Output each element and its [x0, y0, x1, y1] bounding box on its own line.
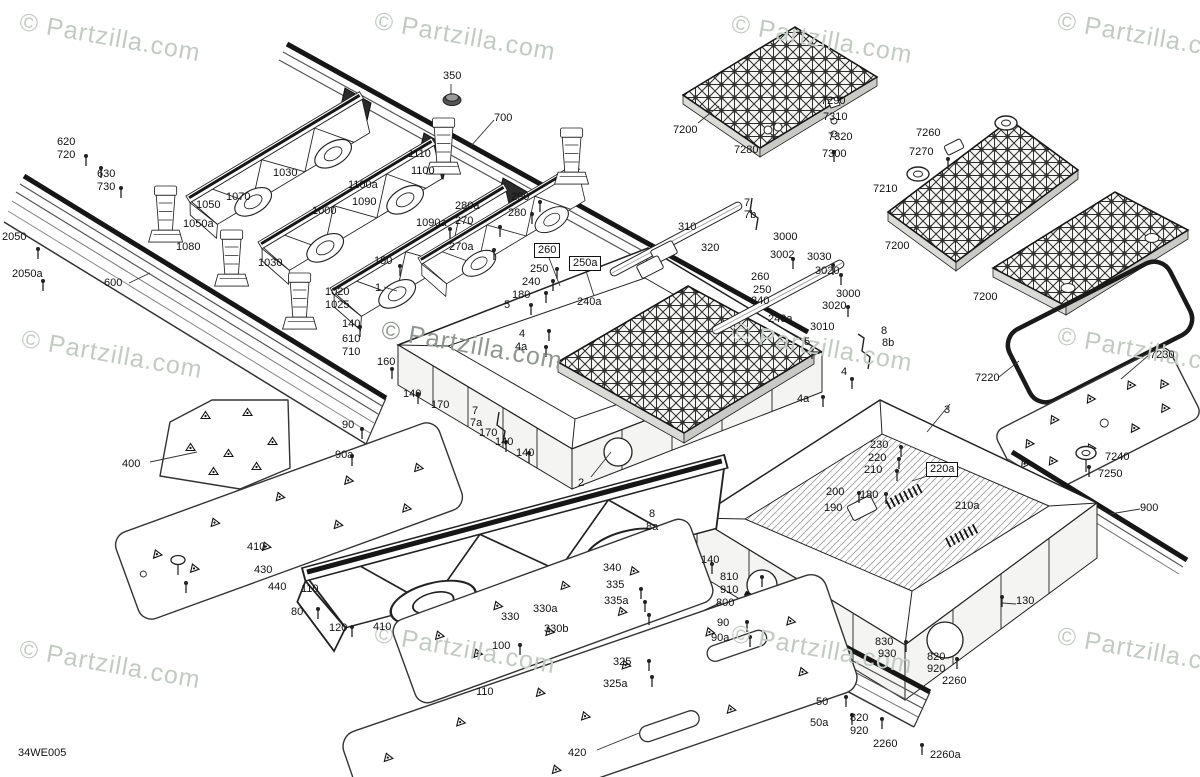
- part-label-3: 3: [944, 404, 950, 416]
- part-label-7320: 7320: [828, 131, 852, 143]
- part-label-3020: 3020: [815, 265, 839, 277]
- part-label-1100a: 1100a: [348, 179, 378, 191]
- diagram-artwork: [0, 0, 1200, 777]
- part-label-7230: 7230: [1150, 349, 1174, 361]
- part-label-90: 90: [342, 419, 354, 431]
- part-label-2050a: 2050a: [12, 268, 43, 280]
- part-label-100: 100: [492, 640, 510, 652]
- part-label-110: 110: [301, 583, 319, 595]
- part-label-7200: 7200: [885, 240, 909, 252]
- part-label-410: 410: [373, 621, 391, 633]
- part-label-1110: 1110: [408, 148, 431, 160]
- part-label-240: 240: [751, 295, 769, 307]
- part-label-3000: 3000: [836, 288, 860, 300]
- part-label-240: 240: [522, 276, 540, 288]
- part-label-310: 310: [678, 221, 696, 233]
- part-label-610: 610: [342, 333, 360, 345]
- part-label-260: 260: [751, 271, 769, 283]
- part-label-340: 340: [603, 562, 621, 574]
- part-label-410: 410: [247, 541, 265, 553]
- part-label-4: 4: [841, 366, 847, 378]
- part-label-280a: 280a: [455, 200, 479, 212]
- part-label-1050a: 1050a: [183, 218, 214, 230]
- part-label-630: 630: [97, 168, 115, 180]
- part-label-3030: 3030: [807, 251, 831, 263]
- part-label-7250: 7250: [1098, 468, 1122, 480]
- part-label-7b: 7b: [744, 209, 756, 221]
- part-label-170: 170: [431, 399, 449, 411]
- part-label-420: 420: [568, 747, 586, 759]
- part-label-1090: 1090: [352, 196, 376, 208]
- part-label-1070: 1070: [226, 191, 250, 203]
- part-label-7280: 7280: [734, 144, 758, 156]
- part-label-7210: 7210: [873, 183, 897, 195]
- part-label-325a: 325a: [603, 678, 627, 690]
- part-label-3020: 3020: [822, 300, 846, 312]
- part-label-7260: 7260: [916, 127, 940, 139]
- part-label-230: 230: [870, 439, 888, 451]
- part-label-700: 700: [494, 112, 512, 124]
- part-label-4a: 4a: [797, 393, 809, 405]
- part-label-1080: 1080: [176, 241, 200, 253]
- part-label-7310: 7310: [823, 111, 847, 123]
- part-label-330: 330: [501, 611, 519, 623]
- part-label-130: 130: [1016, 595, 1034, 607]
- part-label-620: 620: [57, 136, 75, 148]
- part-label-50: 50: [816, 696, 828, 708]
- part-label-830: 830: [875, 636, 893, 648]
- part-label-3010: 3010: [810, 321, 834, 333]
- part-label-260: 260: [534, 243, 560, 258]
- part-label-270: 270: [455, 215, 473, 227]
- part-label-325: 325: [613, 656, 631, 668]
- part-label-920: 920: [850, 725, 868, 737]
- part-label-900: 900: [1140, 502, 1158, 514]
- part-label-350: 350: [443, 70, 461, 82]
- part-label-3000: 3000: [773, 231, 797, 243]
- part-label-7: 7: [472, 405, 478, 417]
- part-label-8a: 8a: [646, 521, 658, 533]
- part-label-290: 290: [511, 191, 529, 203]
- part-label-90a: 90a: [711, 632, 729, 644]
- part-label-240a: 240a: [768, 313, 792, 325]
- part-label-720: 720: [57, 149, 75, 161]
- part-label-4: 4: [519, 328, 525, 340]
- part-label-1020: 1020: [325, 286, 349, 298]
- part-label-140: 140: [342, 318, 360, 330]
- part-label-1030: 1030: [258, 257, 282, 269]
- part-label-8: 8: [881, 325, 887, 337]
- part-label-1030: 1030: [273, 167, 297, 179]
- part-label-180: 180: [860, 489, 878, 501]
- part-label-210: 210: [864, 464, 882, 476]
- part-label-90a: 90a: [335, 449, 353, 461]
- part-label-140: 140: [495, 436, 513, 448]
- part-label-250: 250: [530, 263, 548, 275]
- part-label-8b: 8b: [882, 337, 894, 349]
- part-label-210a: 210a: [955, 500, 979, 512]
- part-label-190: 190: [824, 502, 842, 514]
- part-label-7220: 7220: [975, 372, 999, 384]
- part-label-330b: 330b: [544, 623, 568, 635]
- part-label-2: 2: [578, 477, 584, 489]
- part-label-820: 820: [850, 712, 868, 724]
- part-label-7240: 7240: [1105, 451, 1129, 463]
- part-label-440: 440: [268, 581, 286, 593]
- part-label-910: 910: [720, 584, 738, 596]
- part-label-240a: 240a: [577, 296, 601, 308]
- part-label-180: 180: [512, 289, 530, 301]
- part-label-335a: 335a: [604, 595, 628, 607]
- part-label-80: 80: [291, 606, 303, 618]
- part-label-5: 5: [804, 336, 810, 348]
- part-label-710: 710: [342, 346, 360, 358]
- part-label-920: 920: [927, 663, 945, 675]
- part-label-320: 320: [701, 242, 719, 254]
- parts-diagram-stage: © Partzilla.com© Partzilla.com© Partzill…: [0, 0, 1200, 777]
- part-label-7290: 7290: [821, 95, 845, 107]
- part-label-220: 220: [868, 452, 886, 464]
- diagram-code: 34WE005: [18, 747, 66, 759]
- part-label-2260: 2260: [873, 738, 897, 750]
- part-label-730: 730: [97, 181, 115, 193]
- part-label-1: 1: [375, 282, 381, 294]
- part-label-5: 5: [504, 299, 510, 311]
- part-label-430: 430: [254, 564, 272, 576]
- part-label-600: 600: [104, 277, 122, 289]
- part-label-8: 8: [649, 508, 655, 520]
- part-label-3002: 3002: [770, 249, 794, 261]
- part-label-250a: 250a: [569, 256, 601, 271]
- part-label-7300: 7300: [822, 148, 846, 160]
- part-label-330a: 330a: [533, 603, 557, 615]
- part-label-2050: 2050: [2, 231, 26, 243]
- part-label-1000: 1000: [312, 205, 336, 217]
- part-label-335: 335: [606, 579, 624, 591]
- part-label-820: 820: [927, 651, 945, 663]
- part-label-1050: 1050: [196, 199, 220, 211]
- part-label-120: 120: [329, 622, 347, 634]
- foam-plate-400: [160, 400, 290, 489]
- part-label-1100: 1100: [411, 165, 435, 177]
- part-label-4a: 4a: [515, 341, 527, 353]
- part-label-220a: 220a: [926, 462, 958, 477]
- part-label-2260: 2260: [942, 675, 966, 687]
- part-label-150: 150: [374, 255, 392, 267]
- part-label-2260a: 2260a: [930, 749, 961, 761]
- part-label-800: 800: [716, 597, 734, 609]
- part-label-7200: 7200: [973, 291, 997, 303]
- part-label-1090a: 1090a: [416, 217, 447, 229]
- part-label-200: 200: [826, 486, 844, 498]
- part-label-160: 160: [377, 356, 395, 368]
- part-label-140: 140: [516, 447, 534, 459]
- part-label-90: 90: [717, 617, 729, 629]
- part-label-810: 810: [720, 571, 738, 583]
- part-label-7200: 7200: [673, 124, 697, 136]
- part-label-930: 930: [878, 648, 896, 660]
- part-label-7270: 7270: [909, 146, 933, 158]
- part-label-400: 400: [122, 458, 140, 470]
- part-label-140: 140: [701, 554, 719, 566]
- part-label-50a: 50a: [810, 717, 828, 729]
- part-label-270a: 270a: [449, 241, 473, 253]
- part-label-140: 140: [403, 388, 421, 400]
- part-label-1025: 1025: [325, 299, 349, 311]
- part-label-280: 280: [508, 207, 526, 219]
- part-label-7: 7: [744, 197, 750, 209]
- part-label-110: 110: [476, 686, 494, 698]
